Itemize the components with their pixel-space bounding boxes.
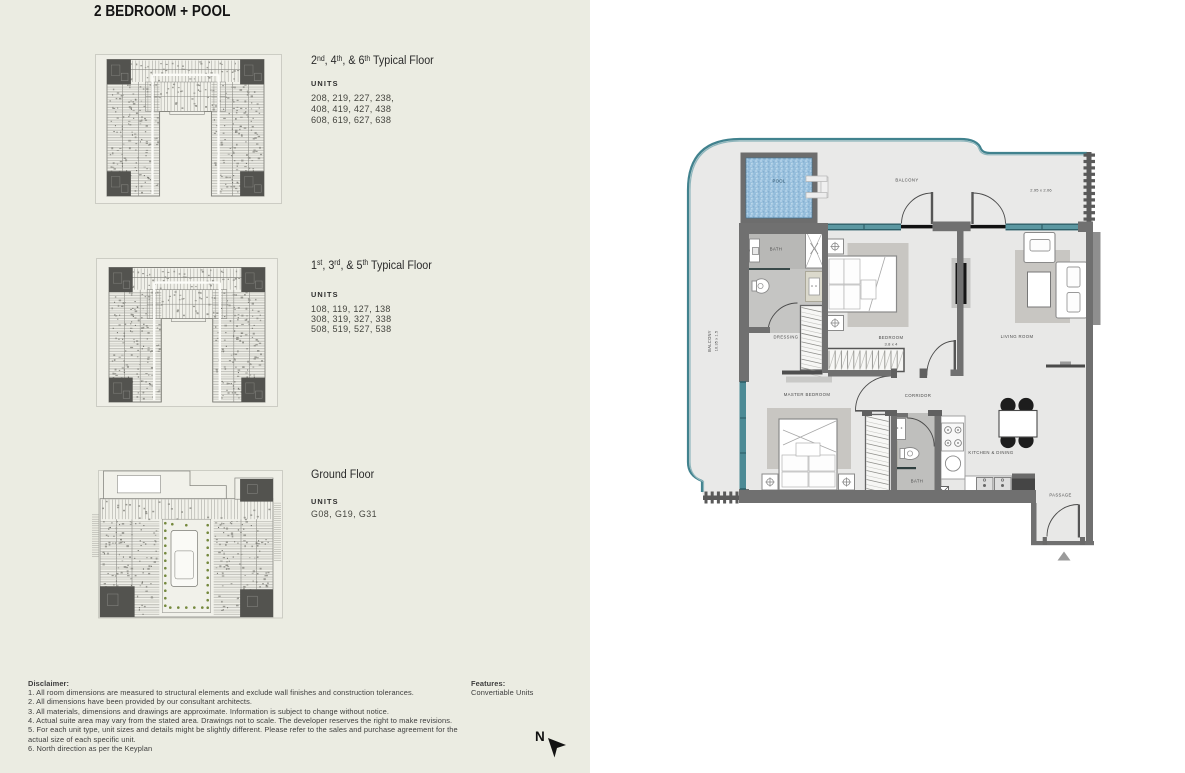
svg-text:BATH: BATH <box>911 479 923 484</box>
svg-text:BATH: BATH <box>770 247 782 252</box>
svg-text:POOL: POOL <box>772 179 785 184</box>
svg-text:3.8 x 4: 3.8 x 4 <box>884 342 898 347</box>
svg-text:2.95 x 2.06: 2.95 x 2.06 <box>1030 188 1052 193</box>
svg-text:LIVING ROOM: LIVING ROOM <box>1001 334 1034 339</box>
svg-text:BALCONY: BALCONY <box>707 330 712 352</box>
svg-text:10.35 x 1.5: 10.35 x 1.5 <box>715 331 719 351</box>
svg-text:CORRIDOR: CORRIDOR <box>905 393 931 398</box>
svg-text:KITCHEN & DINING: KITCHEN & DINING <box>968 450 1014 455</box>
svg-text:BALCONY: BALCONY <box>895 178 918 183</box>
svg-text:MASTER BEDROOM: MASTER BEDROOM <box>784 392 831 397</box>
svg-text:DRESSING: DRESSING <box>774 335 799 340</box>
svg-text:BEDROOM: BEDROOM <box>879 335 904 340</box>
svg-text:PASSAGE: PASSAGE <box>1049 493 1071 498</box>
